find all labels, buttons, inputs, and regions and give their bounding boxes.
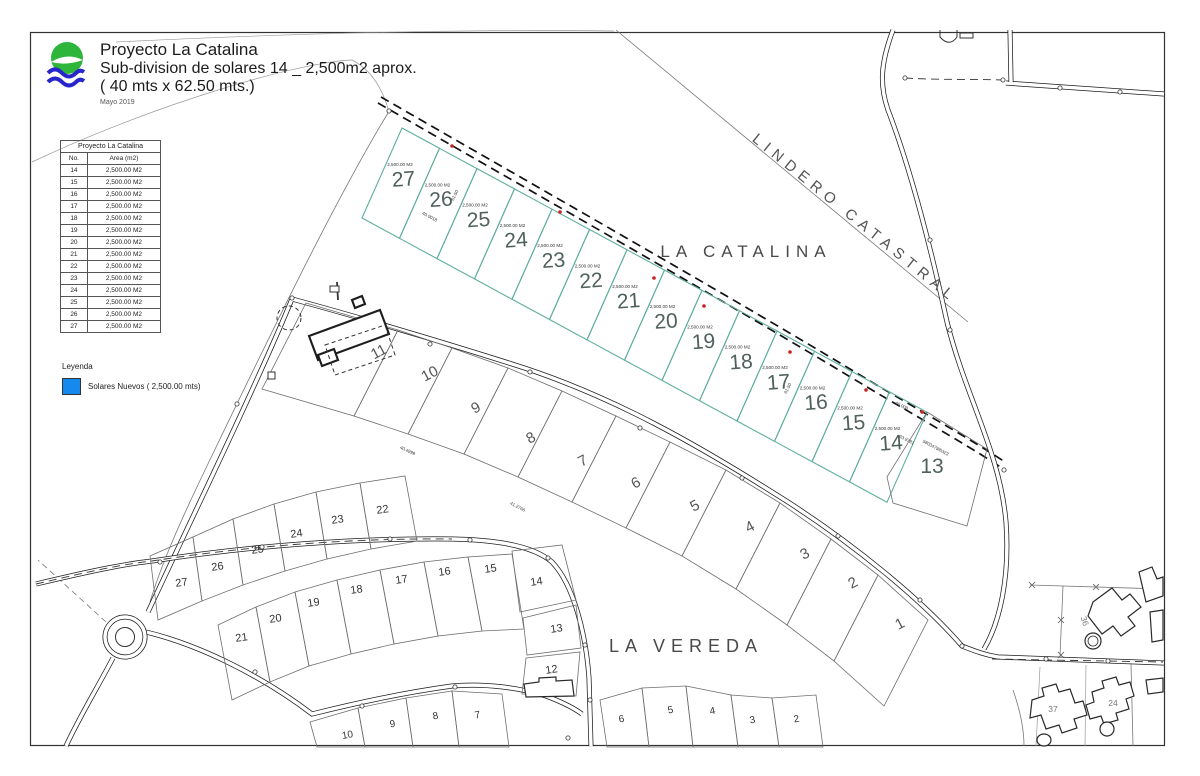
lot-number: 4 [742,518,757,537]
lot-number: 13 [920,455,943,478]
lot-number: 3 [797,545,812,564]
lot-number: 27 [391,167,416,192]
survey-point [740,476,744,480]
lot-number: 23 [331,513,345,527]
table-row: 272,500.00 M2 [61,321,161,333]
lot-number: 5 [667,705,675,717]
cell-area: 2,500.00 M2 [87,201,160,213]
table-row: 192,500.00 M2 [61,225,161,237]
boundary-marker-red [702,304,706,308]
lot-area-label: 2,500.00 M2 [500,223,526,228]
corner-x-mark [1058,617,1064,623]
lot-number: 16 [804,391,829,416]
building-top-border [940,30,957,42]
survey-point [1001,78,1005,82]
cell-no: 23 [61,273,88,285]
survey-point [468,538,472,542]
lot-number: 10 [419,363,442,386]
lot-number: 21 [235,631,249,645]
legend-title: Leyenda [62,362,282,371]
table-row: 212,500.00 M2 [61,249,161,261]
area-label-la-vereda: LA VEREDA [609,636,763,656]
project-subtitle: Sub-division de solares 14 _ 2,500m2 apr… [100,60,417,78]
lot-number: 6 [618,714,626,726]
building-top-border [960,33,973,38]
lot-area-label: 2,500.00 M2 [425,182,451,187]
cell-area: 2,500.00 M2 [87,309,160,321]
table-row: 142,500.00 M2 [61,165,161,177]
cell-no: 22 [61,261,88,273]
lot-number: 26 [211,560,225,574]
cell-no: 24 [61,285,88,297]
boundary-marker-red [652,276,656,280]
boundary-marker-red [864,388,868,392]
table-col-no: No. [61,153,88,165]
legend: Leyenda Solares Nuevos ( 2,500.00 mts) [62,362,282,395]
survey-point [158,560,162,564]
lot-parcel [337,570,394,654]
table-row: 182,500.00 M2 [61,213,161,225]
lot-area-label: 2,500.00 M2 [875,426,901,431]
survey-point [1002,468,1006,472]
road [146,632,582,714]
legend-swatch-solares-nuevos [62,378,81,395]
road [882,30,1006,649]
lot-number: 8 [432,711,440,723]
survey-point [1044,657,1048,661]
survey-point [566,736,570,740]
survey-point [453,685,457,689]
cadastral-boundary-dashed [378,103,1002,468]
table-row: 252,500.00 M2 [61,297,161,309]
house-northeast [1139,567,1163,602]
cell-no: 14 [61,165,88,177]
lot-area-label: 2,500.00 M2 [650,304,676,309]
survey-point [836,534,840,538]
lot-number: 2 [793,714,801,726]
lot-number: 12 [545,663,559,677]
house-east [1150,610,1163,642]
cell-no: 15 [61,177,88,189]
lot-number: 9 [468,399,483,418]
lot-area-table: Proyecto La Catalina No. Area (m2) 142,5… [60,140,161,333]
cell-area: 2,500.00 M2 [87,261,160,273]
lot-number: 24 [290,527,304,541]
lot-area-label: 2,500.00 M2 [837,406,863,411]
cell-area: 2,500.00 M2 [87,177,160,189]
lot-number: 21 [616,289,641,314]
cell-no: 19 [61,225,88,237]
survey-point [588,698,592,702]
lot-number: 17 [395,573,409,587]
survey-point [948,328,952,332]
lot-number: 14 [530,575,544,589]
survey-point [1058,86,1062,90]
dimension-label: 40.4999 [399,445,416,457]
area-label-lindero-catastral: LINDERO CATASTRAL [749,130,961,306]
lot-number: 8 [523,429,538,448]
survey-point [903,76,907,80]
area-label-la-catalina: LA CATALINA [660,242,831,261]
table-col-area: Area (m2) [87,153,160,165]
lot-area-label: 2,500.00 M2 [687,324,713,329]
lot-parcel [380,562,438,644]
cell-no: 17 [61,201,88,213]
legend-item-label: Solares Nuevos ( 2,500.00 mts) [88,382,201,391]
lot-area-label: 2,500.00 M2 [725,345,751,350]
lot-area-label: 2,500.00 M2 [462,203,488,208]
lot-number: 9 [389,719,397,731]
lot-number: 20 [654,309,679,334]
table-row: 242,500.00 M2 [61,285,161,297]
lot-dimensions: ( 40 mts x 62.50 mts.) [100,78,417,96]
road [1006,83,1164,94]
boundary-marker-red [788,350,792,354]
middle-lot-parcel [572,416,670,528]
table-row: 222,500.00 M2 [61,261,161,273]
project-title: Proyecto La Catalina [100,40,417,60]
survey-point [290,296,294,300]
survey-point [918,598,922,602]
cell-no: 16 [61,189,88,201]
road-dashed [905,78,1003,80]
lot-area-label: 2,500.00 M2 [612,284,638,289]
lot-number: 25 [466,208,491,233]
new-lots-group: 272,500.00 M2262,500.00 M2252,500.00 M22… [362,128,927,502]
building-small [524,677,574,697]
south-lots-group: 27262524232221201918171615141312 [150,476,581,700]
middle-lot-parcel [354,330,452,434]
survey-point [253,670,257,674]
lot-number: 5 [687,497,702,516]
drawing-date: Mayo 2019 [100,99,417,106]
lot-number: 15 [484,562,498,576]
title-block: Proyecto La Catalina Sub-division de sol… [42,40,562,106]
cell-area: 2,500.00 M2 [87,165,160,177]
lot-parcel [358,698,413,747]
middle-lot-parcel [408,348,508,454]
lot-number: 22 [579,269,604,294]
cell-area: 2,500.00 M2 [87,237,160,249]
house-lot-number: 37 [1048,704,1058,714]
cell-area: 2,500.00 M2 [87,321,160,333]
cell-no: 27 [61,321,88,333]
lot-number: 27 [175,576,189,590]
road [148,299,1164,663]
cell-area: 2,500.00 M2 [87,213,160,225]
cell-area: 2,500.00 M2 [87,285,160,297]
lot-number: 6 [628,474,643,493]
boundary-marker-red [558,210,562,214]
lot-number: 19 [307,596,321,610]
lot-number: 19 [691,330,716,355]
lot-number: 22 [376,503,390,517]
cell-area: 2,500.00 M2 [87,225,160,237]
survey-point [388,537,392,541]
dimension-label: 40.0018 [421,211,438,223]
cell-area: 2,500.00 M2 [87,297,160,309]
survey-point [1118,90,1122,94]
lot-area-label: 2,500.00 M2 [387,162,413,167]
boundary-marker-red [450,144,454,148]
table-row: 202,500.00 M2 [61,237,161,249]
lot-number: 20 [269,612,283,626]
survey-point [260,545,264,549]
survey-point [638,426,642,430]
table-row: 262,500.00 M2 [61,309,161,321]
lot-number: 18 [729,350,754,375]
house-lot-number: 24 [1108,698,1118,708]
survey-point [235,402,239,406]
lot-number: 7 [474,710,482,722]
table-row: 162,500.00 M2 [61,189,161,201]
lot-area-label: 2,500.00 M2 [575,264,601,269]
roundabout [105,617,145,657]
house-lot-number: 36 [1079,615,1092,627]
middle-lot-parcel [464,368,562,477]
lot-parcel [295,580,351,666]
road [882,30,1006,649]
cell-area: 2,500.00 M2 [87,249,160,261]
survey-point [583,643,587,647]
lot-parcel [218,607,270,700]
lot-number: 4 [709,706,717,718]
project-logo [42,40,90,90]
lot-number: 2 [845,574,860,593]
table-row: 152,500.00 M2 [61,177,161,189]
lot-number: 24 [504,228,529,253]
drawing-sheet: { "title_block": { "project": "Proyecto … [0,0,1200,776]
lot-number: 1 [892,615,907,634]
lot-area-label: 2,500.00 M2 [537,243,563,248]
cell-no: 25 [61,297,88,309]
lot-number: 13 [550,622,564,636]
survey-point [960,644,964,648]
lot-parcel [642,686,693,747]
survey-point [546,556,550,560]
survey-point [360,704,364,708]
lot-area-label: 2,500.00 M2 [762,365,788,370]
survey-point [928,238,932,242]
lot-number: 7 [575,452,590,471]
lot-parcel [424,557,482,636]
middle-lots-group: 1110987654321 [262,303,928,706]
lot-number: 16 [438,565,452,579]
lot-parcel [600,688,649,747]
road [1010,30,1011,82]
lot-number: 18 [350,583,364,597]
table-row: 232,500.00 M2 [61,273,161,285]
boundary-marker-red [920,410,924,414]
survey-point [1106,659,1110,663]
table-row: 172,500.00 M2 [61,201,161,213]
cell-no: 21 [61,249,88,261]
road [66,658,113,746]
lot-number: 23 [541,248,566,273]
cell-no: 18 [61,213,88,225]
cell-area: 2,500.00 M2 [87,273,160,285]
building-lot11 [268,282,395,379]
cell-no: 20 [61,237,88,249]
survey-point [428,342,432,346]
survey-point [528,370,532,374]
lot-parcel [256,592,309,682]
house-36 [1088,588,1141,636]
road [148,299,1164,663]
lot-number: 3 [749,715,757,727]
house-fragment [1146,678,1163,694]
lot-number: 10 [341,729,354,742]
table-title: Proyecto La Catalina [61,141,161,153]
lot-area-label: 2,500.00 M2 [800,385,826,390]
dimension-label: 41.2766 [509,501,526,513]
lot-number: 15 [841,411,866,436]
survey-point [387,109,391,113]
cell-no: 26 [61,309,88,321]
cell-area: 2,500.00 M2 [87,189,160,201]
